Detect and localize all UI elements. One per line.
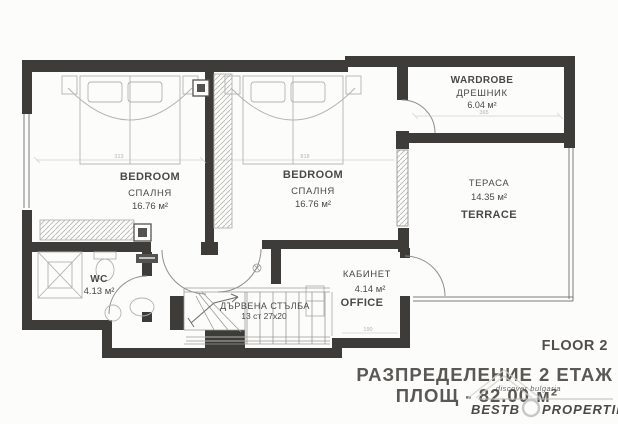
room-name-bg: КАБИНЕТ	[343, 269, 391, 280]
room-name: OFFICE	[341, 297, 384, 309]
room-wc: WC 4.13 м²	[84, 274, 115, 297]
floor-plan-drawing: 313 818 365 190 BEDROOM СПАЛНЯ 16.76 м² …	[0, 0, 618, 424]
dim-label: 818	[300, 154, 309, 160]
room-name: WC	[90, 274, 107, 285]
floor-plan-document: 313 818 365 190 BEDROOM СПАЛНЯ 16.76 м² …	[0, 0, 618, 424]
room-area: 16.76 м²	[132, 201, 168, 212]
bed-left	[62, 76, 198, 164]
column-symbol	[134, 224, 151, 241]
insulated-wall	[397, 150, 408, 226]
room-name: TERRACE	[461, 209, 517, 221]
terrace-railing	[413, 148, 573, 301]
column-symbol	[193, 80, 209, 96]
room-area: 14.35 м²	[471, 192, 507, 203]
door-arc	[162, 250, 206, 294]
room-bedroom-middle: BEDROOM СПАЛНЯ 16.76 м²	[283, 169, 343, 210]
dim-label: 190	[363, 327, 372, 333]
floor-label: FLOOR 2	[542, 338, 608, 354]
staircase-labels: ДЪРВЕНА СТЪЛБА 13 ст 27х20	[220, 301, 310, 321]
room-name-bg: СПАЛНЯ	[291, 186, 335, 197]
room-area: 16.76 м²	[295, 199, 331, 210]
room-wardrobe: WARDROBE ДРЕШНИК 6.04 м²	[451, 75, 514, 110]
room-area: 6.04 м²	[467, 100, 496, 110]
shower	[38, 252, 82, 298]
watermark-tagline: discover bulgaria	[496, 384, 561, 393]
door-arc	[402, 100, 435, 133]
basin	[105, 305, 121, 321]
room-area: 4.14 м²	[355, 284, 386, 295]
page-title-line1: РАЗПРЕДЕЛЕНИЕ 2 ЕТАЖ	[356, 364, 613, 385]
closet-strip	[214, 74, 232, 228]
watermark-brand-right: PROPERTIES	[542, 402, 618, 417]
staircase-name: ДЪРВЕНА СТЪЛБА	[220, 301, 310, 311]
staircase-steps: 13 ст 27х20	[241, 311, 287, 321]
room-terrace: ТЕРАСА 14.35 м² TERRACE	[461, 178, 517, 221]
room-name: WARDROBE	[451, 75, 514, 86]
dim-label: 313	[114, 154, 123, 160]
room-bedroom-left: BEDROOM СПАЛНЯ 16.76 м²	[120, 171, 180, 212]
room-office: КАБИНЕТ 4.14 м² OFFICE	[341, 269, 391, 309]
room-name-bg: ТЕРАСА	[469, 178, 510, 189]
lamp-symbol	[253, 264, 261, 272]
door-arc	[405, 256, 445, 296]
room-name-bg: ДРЕШНИК	[456, 88, 507, 99]
bed-middle	[225, 76, 361, 164]
door-arc	[109, 276, 147, 314]
dim-label: 365	[479, 110, 488, 116]
watermark-brand-left: BESTB	[471, 402, 520, 417]
furniture	[38, 74, 361, 321]
room-name: BEDROOM	[283, 169, 343, 181]
room-area: 4.13 м²	[84, 286, 115, 297]
window-left	[24, 114, 29, 208]
closet-strip	[40, 220, 134, 240]
room-name: BEDROOM	[120, 171, 180, 183]
room-name-bg: СПАЛНЯ	[128, 188, 172, 199]
